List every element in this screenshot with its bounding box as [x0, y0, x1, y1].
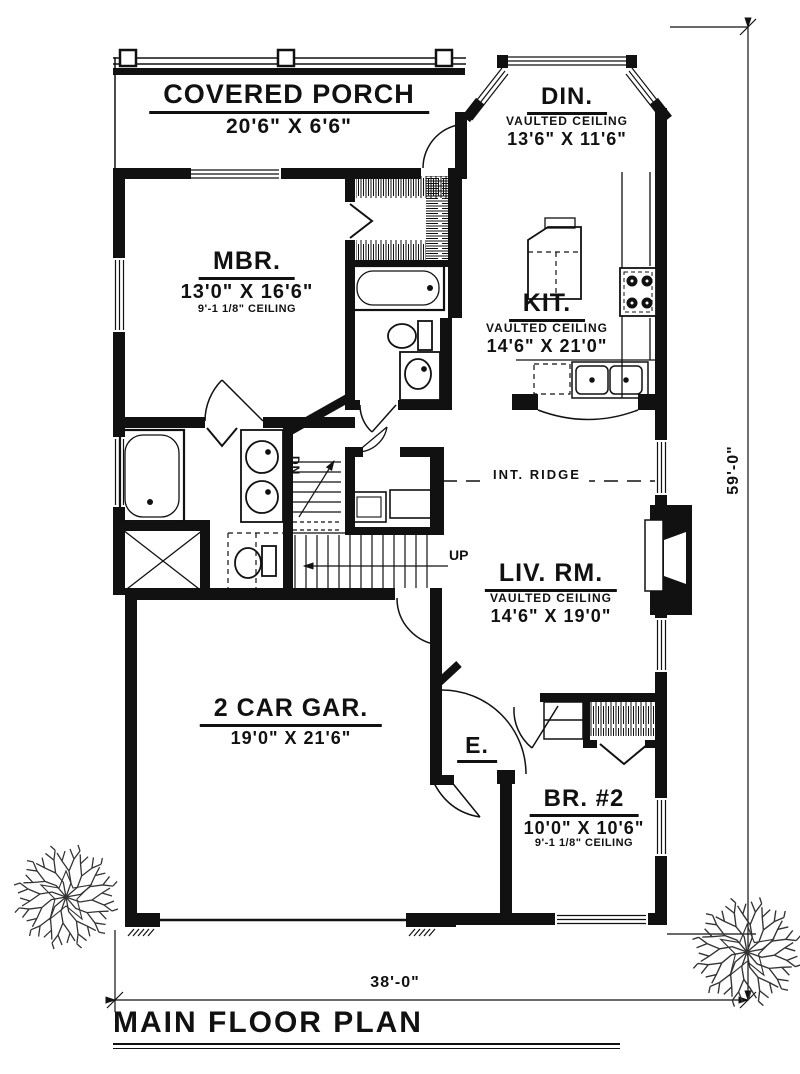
overall-height-dimension: 59'-0" — [725, 445, 743, 494]
living-name: LIV. RM. — [485, 560, 617, 592]
stairs-up-label: UP — [449, 547, 468, 564]
entry-rear-door — [433, 780, 480, 817]
shower — [123, 530, 203, 592]
porch-size: 20'6" X 6'6" — [149, 116, 429, 139]
toilet-tank — [262, 546, 276, 576]
bath2-tub — [352, 266, 444, 310]
dining-name: DIN. — [527, 84, 607, 115]
room-label-bedroom2: BR. #2 10'0" X 10'6" 9'-1 1/8" CEILING — [524, 786, 645, 850]
floor-plan-drawing — [0, 0, 800, 1074]
floor-plan-page: COVERED PORCH 20'6" X 6'6" DIN. VAULTED … — [0, 0, 800, 1074]
master-ceiling: 9'-1 1/8" CEILING — [181, 304, 314, 316]
br2-closet-bifold — [600, 744, 648, 764]
room-label-kitchen: KIT. VAULTED CEILING 14'6" X 21'0" — [486, 290, 608, 356]
plan-title-block: MAIN FLOOR PLAN — [113, 1006, 620, 1049]
bedroom2-ceiling: 9'-1 1/8" CEILING — [524, 838, 645, 850]
dining-size: 13'6" X 11'6" — [506, 130, 628, 149]
water-closet — [228, 533, 283, 592]
master-size: 13'0" X 16'6" — [181, 282, 314, 304]
garage-size: 19'0" X 21'6" — [200, 729, 382, 748]
bath2-sink — [400, 352, 440, 400]
counter-post — [512, 394, 538, 410]
stairs-down-label: DN — [288, 456, 302, 475]
room-label-master: MBR. 13'0" X 16'6" 9'-1 1/8" CEILING — [181, 248, 314, 315]
ridge-text: INT. RIDGE — [485, 467, 589, 482]
title-underline — [113, 1043, 620, 1049]
plan-title: MAIN FLOOR PLAN — [113, 1006, 620, 1040]
porch-post — [278, 50, 294, 66]
ridge-label: INT. RIDGE — [485, 466, 589, 483]
room-label-dining: DIN. VAULTED CEILING 13'6" X 11'6" — [506, 84, 628, 149]
stairs-up — [293, 533, 448, 588]
entry-name: E. — [457, 733, 497, 763]
tree-icon — [692, 897, 800, 1006]
desk-counters — [352, 490, 432, 522]
vanity-sinks — [241, 430, 283, 522]
kitchen-name: KIT. — [509, 290, 585, 322]
br2-door — [514, 706, 558, 748]
bath2-door — [360, 405, 396, 432]
room-label-porch: COVERED PORCH 20'6" X 6'6" — [149, 80, 429, 139]
refrigerator — [528, 218, 581, 299]
bedroom2-size: 10'0" X 10'6" — [524, 819, 645, 838]
master-name: MBR. — [199, 248, 295, 280]
closet-bifold — [350, 204, 372, 238]
living-size: 14'6" X 19'0" — [485, 607, 617, 626]
tree-icon — [14, 845, 118, 949]
garage-door — [128, 920, 435, 936]
nook-door — [357, 427, 387, 452]
master-tub — [120, 430, 184, 522]
up-text: UP — [449, 547, 468, 563]
garage-name: 2 CAR GAR. — [200, 695, 382, 727]
bedroom2-name: BR. #2 — [530, 786, 639, 817]
kitchen-sink — [572, 362, 648, 398]
dishwasher — [534, 364, 570, 394]
porch-post — [120, 50, 136, 66]
room-label-living: LIV. RM. VAULTED CEILING 14'6" X 19'0" — [485, 560, 617, 626]
cooktop — [620, 268, 656, 316]
mbath-door — [207, 428, 237, 446]
kitchen-size: 14'6" X 21'0" — [486, 337, 608, 356]
kitchen-ceiling: VAULTED CEILING — [486, 322, 608, 335]
mbr-door — [205, 380, 263, 421]
counter-post — [638, 394, 666, 410]
linen-shelves — [544, 702, 583, 739]
overall-width-dimension: 38'-0" — [370, 974, 419, 991]
living-ceiling: VAULTED CEILING — [485, 592, 617, 605]
dining-ceiling: VAULTED CEILING — [506, 115, 628, 128]
toilet-bowl — [235, 548, 261, 578]
room-label-entry: E. — [457, 733, 497, 763]
bath2-toilet — [388, 321, 432, 350]
room-label-garage: 2 CAR GAR. 19'0" X 21'6" — [200, 695, 382, 748]
fireplace — [645, 505, 692, 615]
porch-post — [436, 50, 452, 66]
porch-name: COVERED PORCH — [149, 80, 429, 114]
